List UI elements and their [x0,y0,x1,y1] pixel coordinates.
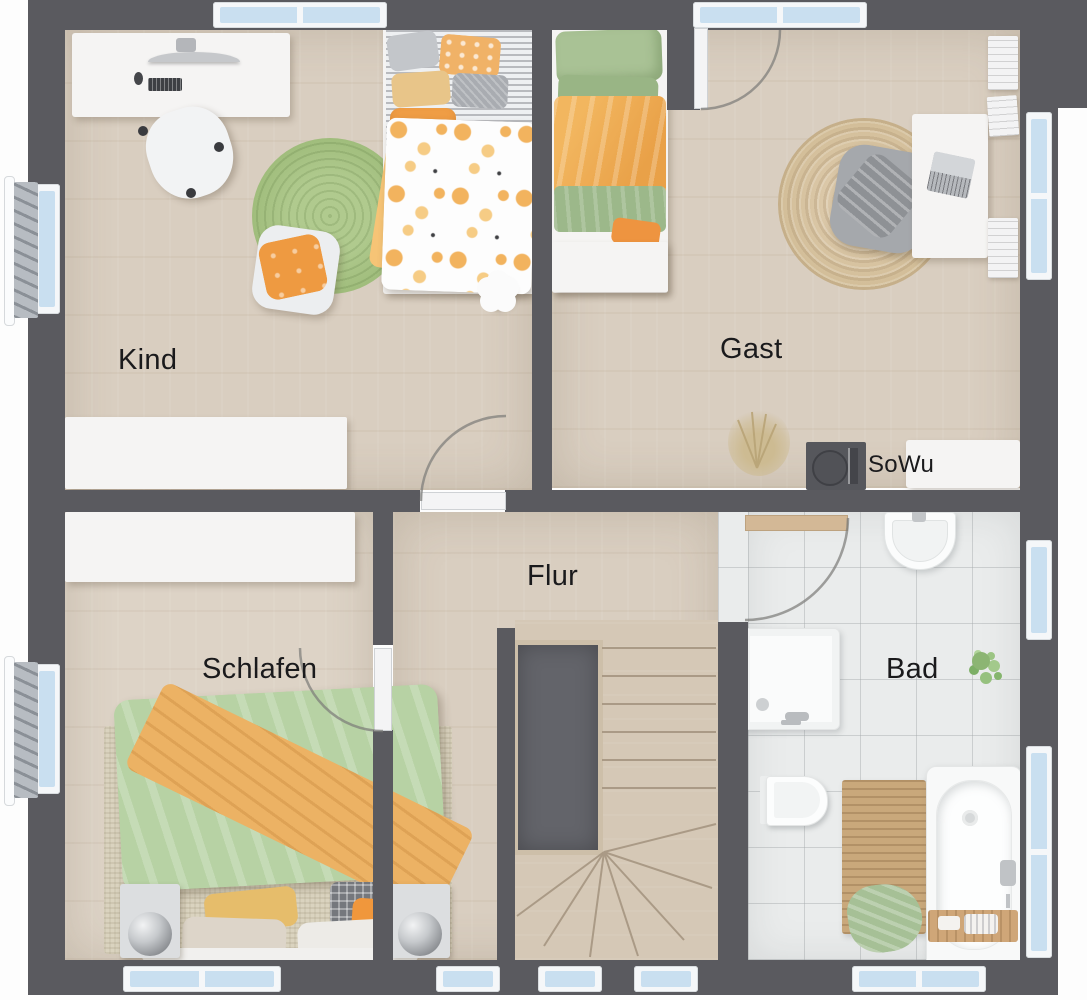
schlafen-lamp-sphere-left [128,912,172,956]
stairwell-opening [513,640,603,855]
wall-stair-left [497,628,515,960]
bad-bathtub-faucet [1000,860,1016,886]
sowu-chimney-flue-circle [812,450,848,486]
gast-book-stack-1 [988,36,1018,90]
door-leaf-schlafen [374,648,392,731]
wall-left [28,0,65,995]
kind-pillow-darkgray [451,73,509,110]
schlafen-wardrobe [65,512,355,582]
wall-flur-bad [718,622,748,960]
gast-bed-footboard [552,242,668,292]
kind-pillow-dotted [438,33,501,78]
window-top-kind [213,2,387,28]
bad-toilet-seat [774,782,820,818]
kind-wardrobe [65,417,347,489]
kind-flower-stool [482,276,514,308]
kind-mouse [134,72,143,85]
kind-keyboard [148,78,182,91]
bad-plant [972,652,990,670]
wall-kind-gast [532,30,552,490]
window-bottom-stair-1 [436,966,500,992]
annotation-label-sowu: SoWu [868,452,934,477]
sowu-chimney-slot [848,448,858,484]
schlafen-lamp-sphere-right [398,912,442,956]
shutter-slats-kind [14,182,38,318]
window-right-bad-lower [1026,746,1052,958]
room-label-gast: Gast [720,334,782,364]
door-leaf-gast [694,28,708,109]
kind-duvet-polka [381,117,537,294]
kind-desk-chair-casters [186,188,196,198]
window-bottom-schlafen [123,966,281,992]
wall-schlafen-flur-upper [373,512,393,645]
window-bottom-bad [852,966,986,992]
window-top-gast [693,2,867,28]
room-label-bad: Bad [886,654,939,684]
room-label-kind: Kind [118,345,177,375]
bad-bathtub-drain [962,810,978,826]
gast-dried-plant [728,408,790,476]
bad-door-threshold [718,512,748,624]
bad-caddy-towel-roll [964,914,998,934]
bad-shower-drain [756,698,769,711]
room-label-schlafen: Schlafen [202,654,317,684]
wall-top [28,0,1058,30]
wall-right-top-block [1058,0,1087,108]
kind-pillow-gray [386,30,441,73]
kind-pillow-yellow [391,70,451,108]
wall-schlafen-flur-lower [373,730,393,960]
bad-caddy-soap [938,916,960,930]
wall-kind-flur [65,490,420,512]
shutter-slats-schlafen [14,662,38,798]
kind-monitor-stand [176,38,196,52]
floor-plan: Kind Gast Flur Schlafen Bad SoWu [0,0,1087,1000]
wall-gast-bottom [505,490,1020,512]
door-leaf-kind [421,492,506,510]
gast-laptop [926,151,975,199]
window-bottom-stair-2 [538,966,602,992]
window-right-gast [1026,112,1052,280]
window-bottom-stair-3 [634,966,698,992]
gast-book-stack-3 [988,218,1018,278]
gast-book-stack-2 [987,95,1020,137]
bad-shower-faucet [785,712,809,721]
room-label-flur: Flur [527,561,578,591]
door-leaf-bad [745,515,848,531]
window-right-bad-upper [1026,540,1052,640]
